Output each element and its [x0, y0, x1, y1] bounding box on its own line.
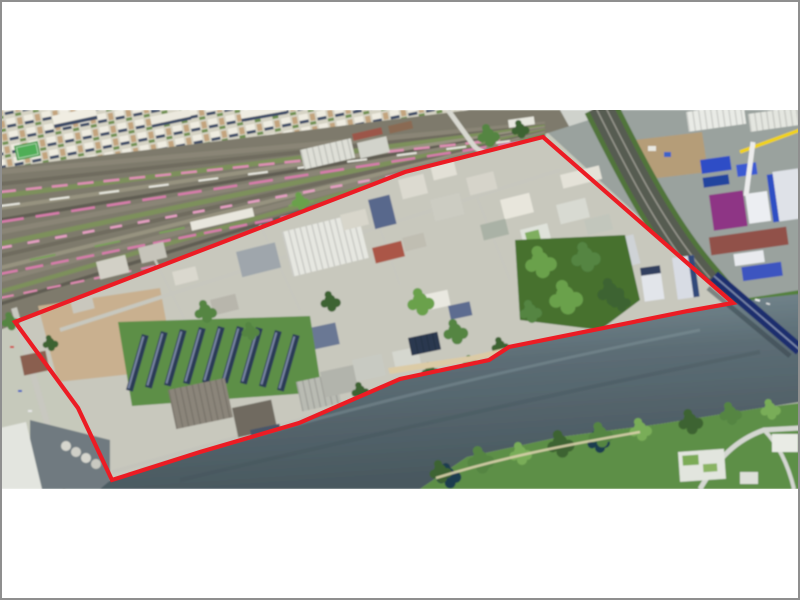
- aerial-photo-figure: [0, 0, 800, 600]
- page-background: [0, 0, 800, 600]
- aerial-photo: [0, 103, 800, 489]
- purple-building: [709, 190, 748, 230]
- screenshot-root: { "figure": { "kind": "aerial-photograph…: [0, 0, 800, 600]
